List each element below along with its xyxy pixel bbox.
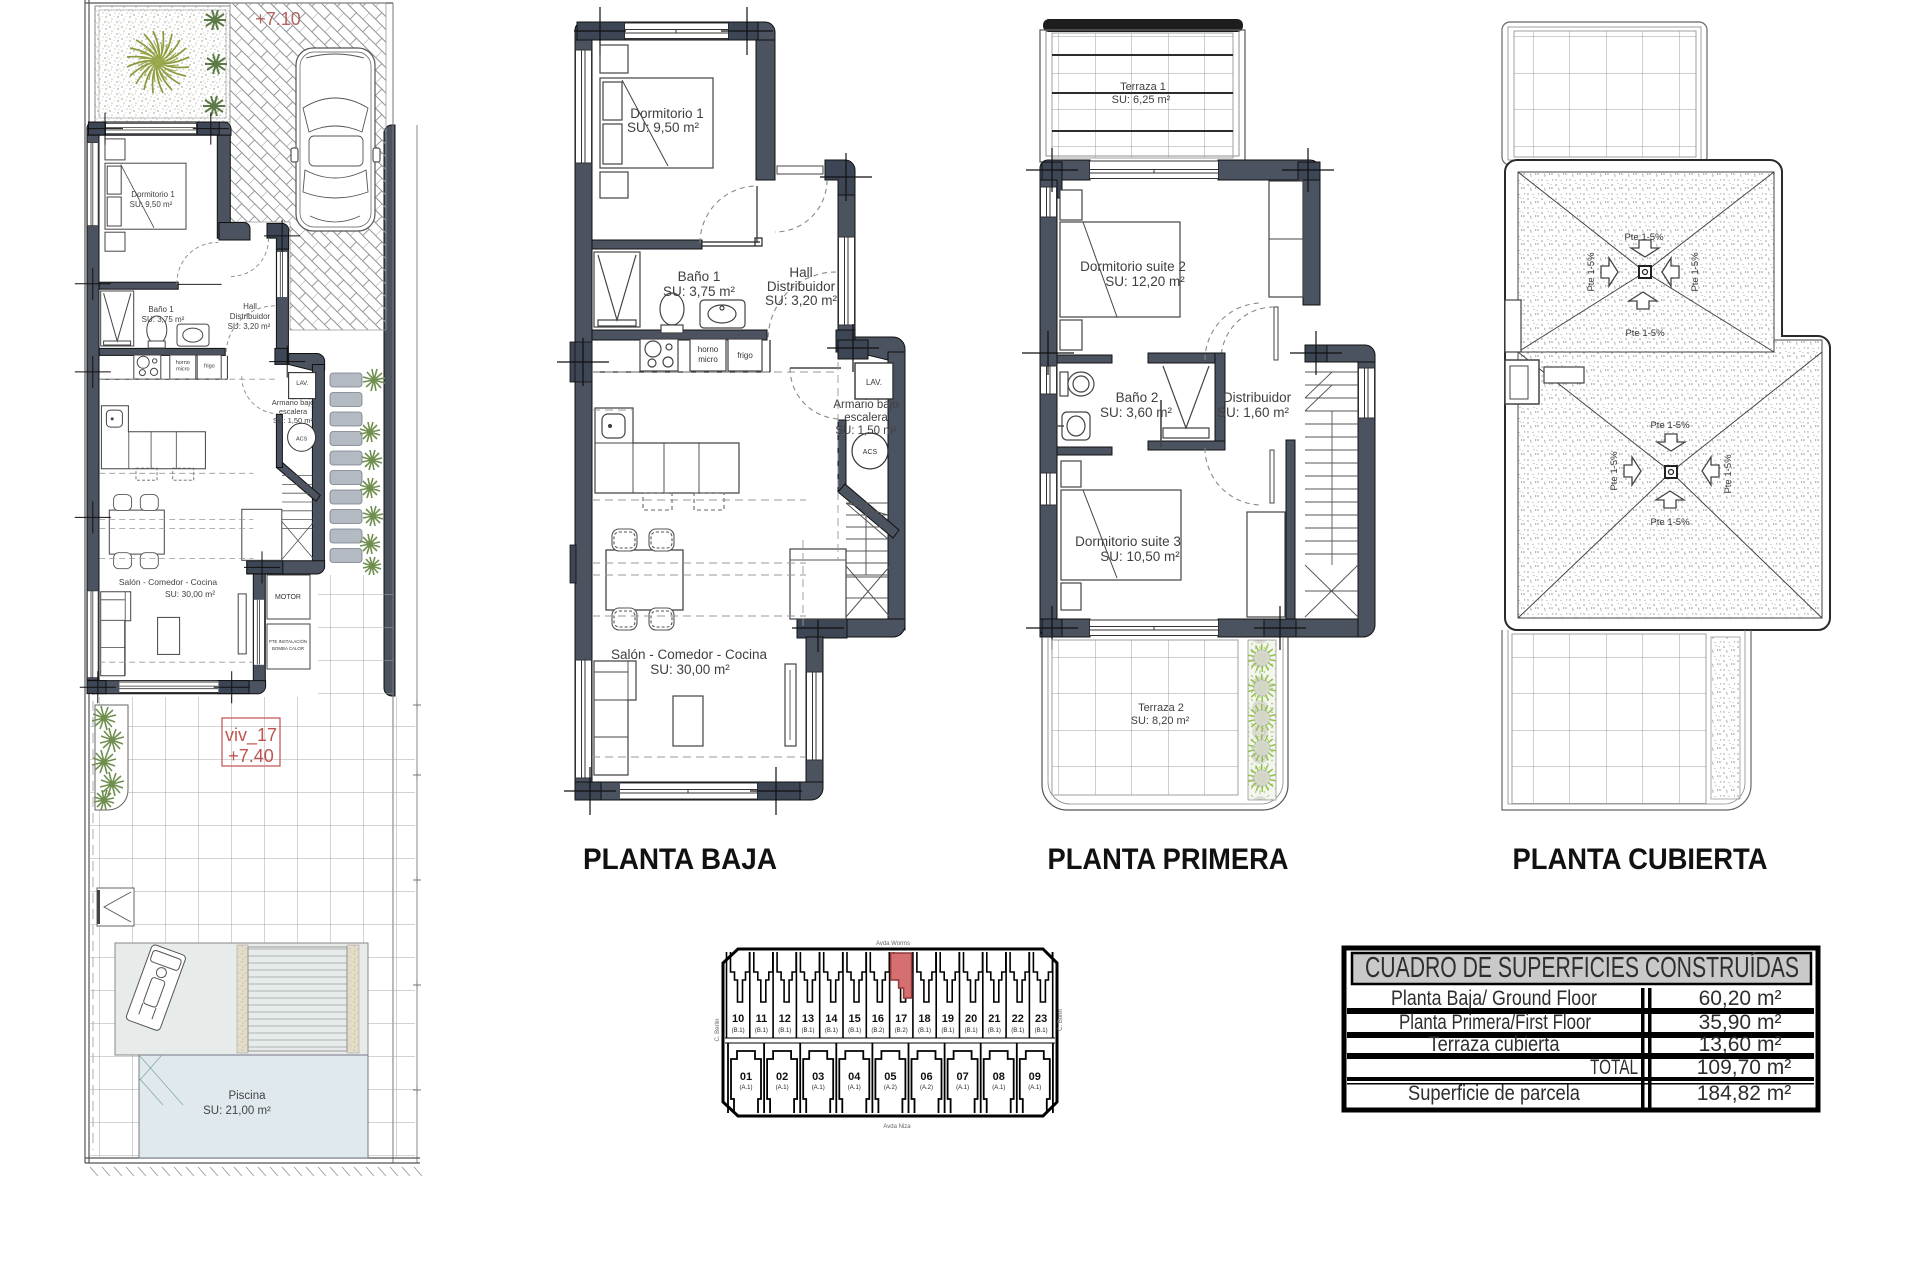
svg-text:frigo: frigo (204, 364, 215, 370)
svg-text:Avda Niza: Avda Niza (883, 1124, 911, 1130)
svg-text:Salón - Comedor - Cocina: Salón - Comedor - Cocina (119, 577, 218, 587)
svg-text:(B.1): (B.1) (941, 1028, 954, 1034)
svg-text:SU: 30,00 m²: SU: 30,00 m² (650, 662, 730, 677)
svg-text:SU: 3,75 m²: SU: 3,75 m² (663, 284, 736, 299)
svg-text:Distribuidor: Distribuidor (230, 312, 271, 321)
svg-text:C. Bonn: C. Bonn (1058, 1009, 1064, 1031)
svg-text:(B.1): (B.1) (825, 1028, 838, 1034)
svg-text:ACS: ACS (863, 449, 878, 456)
svg-text:22: 22 (1012, 1013, 1024, 1025)
svg-text:Superficie de parcela: Superficie de parcela (1408, 1082, 1580, 1105)
svg-text:Terraza cubierta: Terraza cubierta (1429, 1033, 1560, 1056)
svg-text:08: 08 (993, 1071, 1005, 1083)
svg-text:(A.1): (A.1) (956, 1085, 969, 1091)
svg-text:13,60 m²: 13,60 m² (1699, 1033, 1782, 1056)
svg-text:15: 15 (848, 1013, 860, 1025)
svg-text:Dormitorio 1: Dormitorio 1 (630, 106, 704, 121)
svg-text:10: 10 (732, 1013, 744, 1025)
svg-text:04: 04 (848, 1071, 861, 1083)
svg-text:Baño 1: Baño 1 (148, 305, 174, 314)
svg-text:Pte 1-5%: Pte 1-5% (1690, 252, 1701, 292)
svg-text:+7.10: +7.10 (255, 9, 301, 29)
svg-text:Baño 2: Baño 2 (1116, 390, 1159, 405)
svg-text:+7.40: +7.40 (228, 746, 274, 766)
svg-text:02: 02 (776, 1071, 788, 1083)
svg-text:17: 17 (895, 1013, 907, 1025)
svg-text:12: 12 (779, 1013, 791, 1025)
svg-text:(A.1): (A.1) (1028, 1085, 1041, 1091)
svg-text:SU: 1,60 m²: SU: 1,60 m² (1217, 405, 1290, 420)
svg-text:Hall: Hall (789, 265, 812, 280)
svg-text:MOTOR: MOTOR (275, 594, 301, 601)
svg-text:18: 18 (918, 1013, 930, 1025)
svg-text:Piscina: Piscina (228, 1090, 266, 1102)
svg-text:60,20 m²: 60,20 m² (1699, 987, 1782, 1010)
svg-text:Pte 1-5%: Pte 1-5% (1624, 232, 1664, 243)
svg-text:(A.1): (A.1) (848, 1085, 861, 1091)
svg-text:SU: 8,20 m²: SU: 8,20 m² (1131, 715, 1190, 727)
svg-text:09: 09 (1029, 1071, 1041, 1083)
svg-text:Baño 1: Baño 1 (678, 269, 721, 284)
svg-text:SU: 3,20 m²: SU: 3,20 m² (765, 293, 838, 308)
svg-text:(A.1): (A.1) (992, 1085, 1005, 1091)
svg-text:Pte 1-5%: Pte 1-5% (1723, 454, 1734, 494)
svg-text:(B.1): (B.1) (988, 1028, 1001, 1034)
svg-text:SU: 9,50 m²: SU: 9,50 m² (130, 200, 173, 209)
svg-text:SU: 10,50 m²: SU: 10,50 m² (1100, 549, 1180, 564)
svg-text:13: 13 (802, 1013, 814, 1025)
svg-text:(B.1): (B.1) (732, 1028, 745, 1034)
svg-text:PLANTA BAJA: PLANTA BAJA (583, 843, 777, 876)
svg-text:micro: micro (698, 355, 718, 364)
svg-text:Dormitorio suite 2: Dormitorio suite 2 (1080, 259, 1186, 274)
svg-text:(B.1): (B.1) (1035, 1028, 1048, 1034)
svg-text:(B.2): (B.2) (871, 1028, 884, 1034)
svg-text:(B.1): (B.1) (755, 1028, 768, 1034)
svg-text:109,70 m²: 109,70 m² (1697, 1056, 1792, 1079)
svg-text:06: 06 (920, 1071, 932, 1083)
svg-text:PTE INSTALACIÓN: PTE INSTALACIÓN (269, 638, 307, 644)
svg-text:20: 20 (965, 1013, 977, 1025)
svg-text:SU: 6,25 m²: SU: 6,25 m² (1112, 94, 1171, 106)
svg-text:SU: 21,00 m²: SU: 21,00 m² (203, 1105, 271, 1117)
svg-text:(B.1): (B.1) (965, 1028, 978, 1034)
svg-text:LAV.: LAV. (296, 381, 308, 387)
svg-text:micro: micro (176, 366, 189, 372)
svg-text:escalera: escalera (279, 407, 308, 416)
svg-text:Pte 1-5%: Pte 1-5% (1625, 328, 1665, 339)
svg-text:Armario bajo: Armario bajo (272, 398, 315, 407)
svg-text:PLANTA PRIMERA: PLANTA PRIMERA (1048, 843, 1289, 876)
svg-text:PLANTA CUBIERTA: PLANTA CUBIERTA (1513, 843, 1768, 876)
svg-text:ACS: ACS (296, 436, 308, 442)
svg-text:(B.1): (B.1) (801, 1028, 814, 1034)
svg-text:05: 05 (884, 1071, 896, 1083)
svg-text:(B.1): (B.1) (848, 1028, 861, 1034)
svg-text:Dormitorio 1: Dormitorio 1 (131, 190, 175, 199)
svg-text:TOTAL: TOTAL (1590, 1056, 1638, 1079)
svg-text:Terraza 2: Terraza 2 (1138, 702, 1184, 714)
svg-text:07: 07 (956, 1071, 968, 1083)
svg-text:Salón - Comedor - Cocina: Salón - Comedor - Cocina (611, 647, 768, 662)
svg-text:03: 03 (812, 1071, 824, 1083)
svg-text:SU: 1,50 m²: SU: 1,50 m² (273, 416, 314, 425)
svg-text:(A.2): (A.2) (884, 1085, 897, 1091)
svg-text:BOMBA CALOR: BOMBA CALOR (272, 646, 305, 651)
svg-text:11: 11 (756, 1013, 768, 1025)
svg-text:Hall: Hall (243, 302, 257, 311)
svg-text:C. Berlin: C. Berlin (715, 1018, 721, 1041)
svg-text:Pte 1-5%: Pte 1-5% (1650, 517, 1690, 528)
svg-text:Pte 1-5%: Pte 1-5% (1650, 420, 1690, 431)
svg-text:escalera: escalera (844, 412, 888, 424)
svg-text:Planta Primera/First Floor: Planta Primera/First Floor (1399, 1011, 1591, 1034)
svg-text:SU: 9,50 m²: SU: 9,50 m² (627, 120, 700, 135)
svg-text:SU: 30,00 m²: SU: 30,00 m² (165, 589, 215, 599)
svg-text:CUADRO DE SUPERFICIES CONSTRUÍ: CUADRO DE SUPERFICIES CONSTRUÍDAS (1365, 951, 1799, 984)
svg-text:21: 21 (988, 1013, 1000, 1025)
svg-text:(A.1): (A.1) (776, 1085, 789, 1091)
svg-text:(A.2): (A.2) (920, 1085, 933, 1091)
svg-text:LAV.: LAV. (866, 378, 882, 387)
svg-text:(B.1): (B.1) (778, 1028, 791, 1034)
svg-text:(A.1): (A.1) (812, 1085, 825, 1091)
svg-text:Distribuidor: Distribuidor (767, 279, 836, 294)
svg-text:(B.1): (B.1) (1011, 1028, 1024, 1034)
svg-text:(A.1): (A.1) (739, 1085, 752, 1091)
svg-text:Pte 1-5%: Pte 1-5% (1586, 252, 1597, 292)
svg-text:(B.2): (B.2) (895, 1028, 908, 1034)
svg-text:horno: horno (176, 360, 190, 366)
svg-text:14: 14 (825, 1013, 838, 1025)
svg-text:SU: 1,50 m²: SU: 1,50 m² (835, 425, 897, 437)
svg-text:Distribuidor: Distribuidor (1223, 390, 1292, 405)
svg-text:Dormitorio suite 3: Dormitorio suite 3 (1075, 534, 1181, 549)
svg-text:frigo: frigo (737, 351, 753, 360)
svg-text:(B.1): (B.1) (918, 1028, 931, 1034)
svg-text:SU: 3,60 m²: SU: 3,60 m² (1100, 405, 1173, 420)
svg-text:horno: horno (698, 345, 719, 354)
svg-text:Planta Baja/ Ground Floor: Planta Baja/ Ground Floor (1391, 987, 1597, 1010)
svg-text:19: 19 (942, 1013, 954, 1025)
svg-text:35,90 m²: 35,90 m² (1699, 1011, 1782, 1034)
svg-text:Avda Worms: Avda Worms (876, 941, 910, 947)
svg-text:Armario bajo: Armario bajo (833, 399, 898, 411)
svg-text:01: 01 (740, 1071, 752, 1083)
svg-text:viv_17: viv_17 (225, 725, 277, 746)
svg-text:Terraza 1: Terraza 1 (1120, 81, 1166, 93)
svg-text:SU: 12,20 m²: SU: 12,20 m² (1105, 274, 1185, 289)
svg-text:SU: 3,75 m²: SU: 3,75 m² (142, 315, 185, 324)
svg-text:16: 16 (872, 1013, 884, 1025)
svg-text:23: 23 (1035, 1013, 1047, 1025)
svg-text:SU: 3,20 m²: SU: 3,20 m² (228, 322, 271, 331)
svg-text:184,82 m²: 184,82 m² (1697, 1082, 1792, 1105)
svg-text:Pte 1-5%: Pte 1-5% (1609, 451, 1620, 491)
